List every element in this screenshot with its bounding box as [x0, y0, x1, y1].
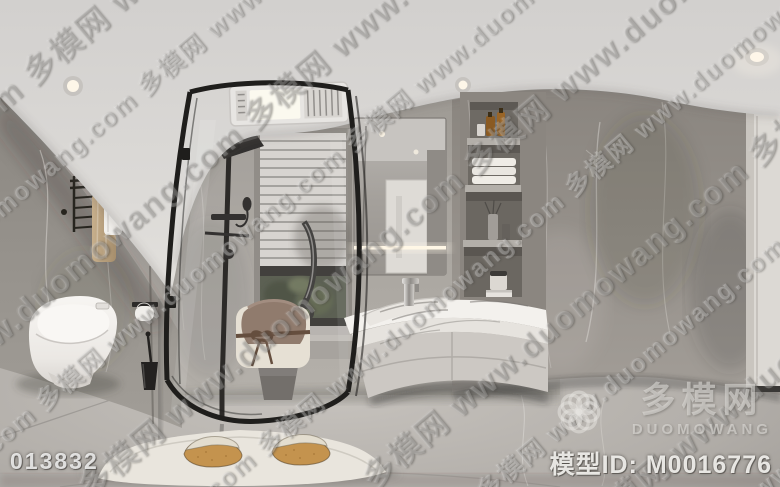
brand-watermark: 多模网 DUOMOWANG 模型ID: M0016776: [550, 383, 772, 481]
brand-name-en: DUOMOWANG: [632, 422, 772, 437]
shower-enclosure: [166, 83, 367, 422]
right-door: [746, 110, 780, 392]
image-code: 013832: [10, 448, 99, 475]
model-id: 模型ID: M0016776: [550, 445, 772, 481]
folded-white-towels: [472, 158, 516, 184]
brand-name-cn: 多模网: [640, 383, 763, 418]
niche-shelves: [460, 92, 546, 332]
panorama-photo: 多模网 www.duomowang.com 多模网 www.duomowang.…: [0, 0, 780, 487]
mirrored-door: [386, 180, 427, 273]
downlight: [63, 76, 83, 96]
downlight: [455, 77, 471, 93]
toilet-控制-button: [96, 303, 109, 309]
